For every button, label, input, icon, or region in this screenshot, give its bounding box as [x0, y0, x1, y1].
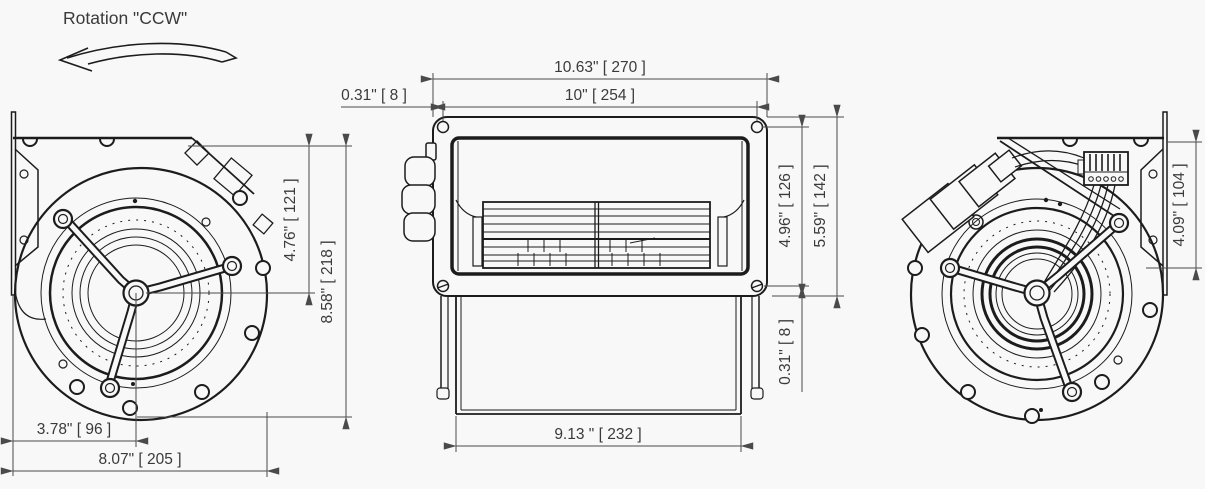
- dim-front-edge-offset-bottom: 0.31" [ 8 ]: [777, 319, 794, 385]
- right-shaft-hub: [1025, 281, 1050, 306]
- ccw-arrow-icon: [60, 43, 236, 71]
- rotation-label: Rotation "CCW": [63, 8, 187, 28]
- front-screw-bottom-right: [752, 281, 763, 292]
- front-view: 10.63" [ 270 ] 10" [ 254 ] 0.31" [ 8 ] 4…: [341, 59, 844, 452]
- left-side-view: 4.76" [ 121 ] 8.58" [ 218 ] 3.78" [ 96 ]…: [12, 112, 353, 477]
- dim-front-overall-width: 10.63" [ 270 ]: [554, 59, 646, 76]
- dim-left-center-width: 3.78" [ 96 ]: [37, 421, 111, 438]
- right-terminal-block: [1078, 152, 1128, 185]
- dim-front-bolt-spacing-height: 4.96" [ 126 ]: [777, 164, 794, 247]
- dim-front-housing-width: 9.13 " [ 232 ]: [554, 426, 641, 443]
- dim-left-center-height: 4.76" [ 121 ]: [282, 178, 299, 261]
- dim-left-overall-height: 8.58" [ 218 ]: [319, 240, 336, 323]
- left-outlet-flange: [12, 112, 16, 295]
- rotation-annotation: Rotation "CCW": [60, 8, 236, 71]
- wheel-blade-ticks: [518, 238, 660, 266]
- front-bolt-hole-top-right: [752, 122, 763, 133]
- front-bolt-hole-top-left: [438, 122, 449, 133]
- right-flange-bracket: [1141, 149, 1163, 266]
- blower-dimension-drawing: Rotation "CCW": [0, 0, 1205, 489]
- technical-drawing: Rotation "CCW": [0, 0, 1205, 489]
- front-lower-housing: [437, 296, 763, 414]
- front-inlet-opening: [452, 138, 748, 274]
- dim-front-edge-offset-top: 0.31" [ 8 ]: [341, 87, 407, 104]
- right-side-view: 4.09" [ 104 ]: [902, 112, 1202, 423]
- left-flange-bracket: [15, 149, 38, 266]
- dim-front-bolt-spacing-width: 10" [ 254 ]: [565, 87, 635, 104]
- dim-right-flange-hole-height: 4.09" [ 104 ]: [1171, 163, 1188, 246]
- front-crossflow-wheel: [483, 202, 710, 268]
- dim-left-overall-width: 8.07" [ 205 ]: [98, 451, 181, 468]
- dim-front-overall-height: 5.59" [ 142 ]: [812, 164, 829, 247]
- front-motor: [402, 143, 436, 241]
- right-motor: [902, 150, 1021, 252]
- front-screw-bottom-left: [438, 281, 449, 292]
